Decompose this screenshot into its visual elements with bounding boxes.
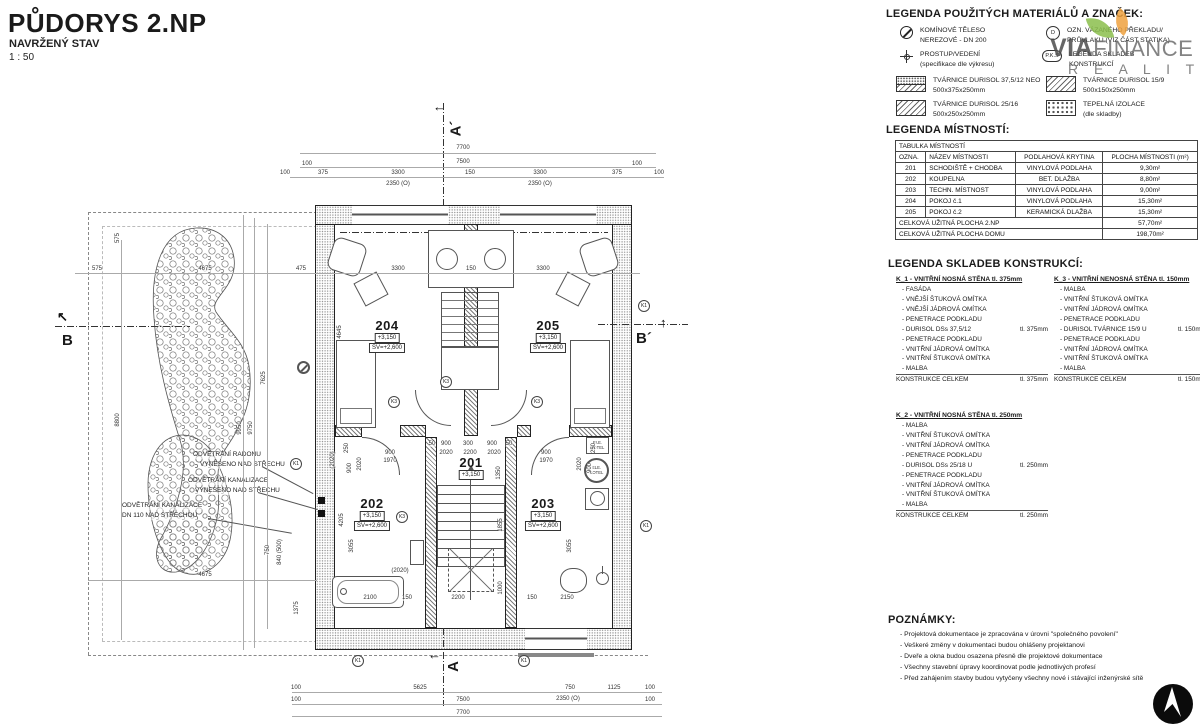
roof-outline-inner-bottom (102, 641, 317, 642)
cell-nazev: POKOJ č.2 (926, 207, 1016, 218)
dim-bot-window: 2350 (O) (556, 696, 580, 702)
bed-204-pillow (340, 408, 372, 424)
k1-marker-top-right: K1 (638, 300, 650, 312)
dim-line-v-8800 (121, 240, 122, 640)
symbol-label: OZN. VÁZANÉHO PŘEKLADU/ (1067, 27, 1163, 34)
layer-row: - VNITŘNÍ ŠTUKOVÁ OMÍTKA (1060, 295, 1200, 305)
dim-corr-300: 300 (463, 441, 473, 447)
layer-name: - PENETRACE PODKLADU (902, 315, 982, 325)
drawing-sheet: PŮDORYS 2.NP NAVRŽENÝ STAV 1 : 50 (0, 0, 1200, 725)
total-house-value: 198,70m² (1103, 229, 1198, 240)
total-2np-label: CELKOVÁ UŽITNÁ PLOCHA 2.NP (896, 218, 1103, 229)
cell-ozna: 205 (896, 207, 926, 218)
table-row: 202 KOUPELNA BET. DLAŽBA 8,80m² (896, 174, 1198, 185)
k3-marker-204: K3 (388, 396, 400, 408)
hatch-label-2: 500x250x250mm (933, 111, 985, 118)
layer-name: - MALBA (1060, 364, 1086, 374)
cell-krytina: KERAMICKÁ DLAŽBA (1016, 207, 1103, 218)
cell-nazev: SCHODIŠTĚ + CHODBA (926, 163, 1016, 174)
room-201-elev: +3,150 (459, 470, 484, 480)
layer-name: - MALBA (902, 364, 928, 374)
layer-row: - MALBA (1060, 285, 1200, 295)
dim-203-2020v: 2020 (577, 457, 583, 470)
room-203-sv: SV=+2,600 (525, 521, 561, 531)
dim-line-bottom-2 (292, 704, 662, 705)
table-row: 201 SCHODIŠTĚ + CHODBA VINYLOVÁ PODLAHA … (896, 163, 1198, 174)
watermark-brand: VIAFINANCE (1050, 34, 1193, 63)
dim-202-2020p2: (2020) (391, 568, 408, 574)
dim-203-3055: 3055 (567, 539, 573, 552)
dim-bot-7700: 7700 (456, 710, 469, 716)
table-row: 203 TECHN. MÍSTNOST VINYLOVÁ PODLAHA 9,0… (896, 185, 1198, 196)
note-item: - Projektová dokumentace je zpracována v… (890, 630, 1143, 641)
layer-name: - VNĚJŠÍ ŠTUKOVÁ OMÍTKA (902, 295, 987, 305)
k2-layers: - MALBA - VNITŘNÍ ŠTUKOVÁ OMÍTKA - VNITŘ… (896, 421, 1048, 511)
dim-left-8800: 8800 (115, 413, 121, 426)
layer-name: - PENETRACE PODKLADU (902, 471, 982, 481)
layer-name: - PENETRACE PODKLADU (1060, 315, 1140, 325)
dim-202-2020v: 2020 (357, 457, 363, 470)
dim-corr-50b: 50 (506, 441, 513, 447)
layer-row: - VNITŘNÍ JÁDROVÁ OMÍTKA (902, 441, 1048, 451)
dim-bot-100L2: 100 (291, 697, 301, 703)
layer-name: - PENETRACE PODKLADU (902, 451, 982, 461)
dim-corr-1855: 1855 (498, 518, 504, 531)
k3-marker-202: K3 (396, 511, 408, 523)
section-arrow-b-prime: ↑ (660, 316, 667, 329)
hatch-label: TVÁRNICE DURISOL 25/16 (933, 101, 1018, 108)
layer-row: - PENETRACE PODKLADU (902, 451, 1048, 461)
cell-plocha: 8,80m² (1103, 174, 1198, 185)
legend-rooms-heading: LEGENDA MÍSTNOSTÍ: (886, 124, 1010, 136)
dim-line-top-3 (290, 177, 664, 178)
layer-name: - PENETRACE PODKLADU (902, 335, 982, 345)
section-arrow-b: ↖ (57, 310, 68, 323)
dim-left-4675: 4675 (198, 266, 211, 272)
layer-row: - VNĚJŠÍ ŠTUKOVÁ OMÍTKA (902, 295, 1048, 305)
cell-nazev: KOUPELNA (926, 174, 1016, 185)
wall-203-corridor-a (517, 425, 531, 437)
dim-line-top-1 (300, 153, 656, 154)
layer-name: - VNITŘNÍ ŠTUKOVÁ OMÍTKA (902, 431, 990, 441)
hatch-durisol-25 (896, 100, 926, 116)
rooms-table-title: TABULKA MÍSTNOSTÍ (896, 141, 1198, 152)
legend-symbol-penetration: PROSTUP/VEDENÍ(specifikace dle výkresu) (900, 50, 994, 70)
room-203-elev: +3,150 (531, 511, 556, 521)
layer-name: - VNITŘNÍ JÁDROVÁ OMÍTKA (902, 345, 990, 355)
annotation-dn110-1: ODVĚTRÁNÍ KANALIZACE (122, 503, 202, 510)
col-ozna: OZNA. (896, 152, 926, 163)
layer-row: - PENETRACE PODKLADU (902, 335, 1048, 345)
dim-corr-900a: 900 (441, 441, 451, 447)
layer-row: - PENETRACE PODKLADU (902, 315, 1048, 325)
threshold-203 (518, 653, 594, 657)
dim-bot-7500: 7500 (456, 697, 469, 703)
room-label-205: 205 (536, 318, 559, 333)
dim-bot-100R: 100 (645, 685, 655, 691)
layer-name: - MALBA (1060, 285, 1086, 295)
k3-layers: - MALBA - VNITŘNÍ ŠTUKOVÁ OMÍTKA - VNITŘ… (1054, 285, 1200, 375)
k1-total-label: KONSTRUKCE CELKEM (896, 375, 968, 386)
dim-203-250: 250 (591, 443, 597, 453)
wall-exterior-left (315, 224, 335, 629)
section-line-b-prime (598, 324, 688, 325)
pipe-penetration-2 (318, 510, 325, 517)
wall-stair-right (505, 437, 517, 628)
rooms-table-body: 201 SCHODIŠTĚ + CHODBA VINYLOVÁ PODLAHA … (896, 163, 1198, 218)
hatch-izolace (1046, 100, 1076, 116)
layer-name: - VNITŘNÍ ŠTUKOVÁ OMÍTKA (902, 354, 990, 364)
wall-exterior-right (612, 224, 632, 629)
cell-plocha: 15,30m² (1103, 196, 1198, 207)
annotation-radon-1: ODVĚTRÁNÍ RADONU (193, 452, 261, 459)
k2-title: K_2 - VNITŘNÍ NOSNÁ STĚNA tl. 250mm (896, 412, 1048, 419)
cell-krytina: VINYLOVÁ PODLAHA (1016, 163, 1103, 174)
dim-corr-1000: 1000 (498, 581, 504, 594)
penetration-legend-icon (900, 50, 913, 63)
room-202-sv: SV=+2,600 (354, 521, 390, 531)
note-item: - Všechny stavební úpravy koordinovat po… (890, 663, 1143, 674)
col-krytina: PODLAHOVÁ KRYTINA (1016, 152, 1103, 163)
k3-total-label: KONSTRUKCE CELKEM (1054, 375, 1126, 386)
dim-202-900v: 900 (347, 463, 353, 473)
dim-202-250: 250 (344, 443, 350, 453)
washbasin-202 (410, 540, 424, 565)
layer-row: - PENETRACE PODKLADU (1060, 335, 1200, 345)
layer-row: - VNITŘNÍ ŠTUKOVÁ OMÍTKA (902, 354, 1048, 364)
dim-203-150: 150 (527, 595, 537, 601)
legend-hatch-izolace: TEPELNÁ IZOLACE(dle skladby) (1046, 100, 1145, 120)
dim-top-7700: 7700 (456, 145, 469, 151)
layer-row: - PENETRACE PODKLADU (1060, 315, 1200, 325)
k1-marker-bottom-right: K1 (518, 655, 530, 667)
k1-marker-right: K1 (640, 520, 652, 532)
watermark-finance: FINANCE (1093, 36, 1193, 61)
layer-thickness: tl. 375mm (1020, 325, 1048, 335)
dim-202-4205: 4205 (339, 513, 345, 526)
dim-line-v-7625 (267, 224, 268, 629)
layer-row: - VNĚJŠÍ JÁDROVÁ OMÍTKA (902, 305, 1048, 315)
layer-name: - PENETRACE PODKLADU (1060, 335, 1140, 345)
symbol-label-2: NEREZOVÉ - DN 200 (920, 37, 986, 44)
layer-row: - VNITŘNÍ JÁDROVÁ OMÍTKA (1060, 345, 1200, 355)
dim-204-3300: 3300 (391, 266, 404, 272)
dim-left-840: 840 (500) (277, 539, 283, 565)
layer-name: - DURISOL TVÁRNICE 15/9 U (1060, 325, 1147, 335)
dim-201-2200: 2200 (451, 595, 464, 601)
dim-left-575v: 575 (115, 233, 121, 243)
dim-left-750: 750 (265, 545, 271, 555)
symbol-label-2: (specifikace dle výkresu) (920, 61, 994, 68)
layer-thickness: tl. 150mm (1178, 325, 1200, 335)
table-row: 204 POKOJ č.1 VINYLOVÁ PODLAHA 15,30m² (896, 196, 1198, 207)
roof-outline-top (88, 212, 317, 213)
cell-ozna: 203 (896, 185, 926, 196)
dim-left-9750: 9750 (248, 421, 254, 434)
construction-k1: K_1 - VNITŘNÍ NOSNÁ STĚNA tl. 375mm - FA… (896, 276, 1048, 386)
section-label-b-prime: B´ (636, 330, 652, 347)
room-204-sv: SV=+2,600 (369, 343, 405, 353)
watermark-via: VIA (1050, 34, 1093, 62)
dim-bot-100R2: 100 (645, 697, 655, 703)
layer-row: - DURISOL DSs 25/18 Utl. 250mm (902, 461, 1048, 471)
dim-center-150: 150 (466, 266, 476, 272)
bathtub-drain (340, 588, 347, 595)
k1-total-value: tl. 375mm (1020, 375, 1048, 386)
dim-left-9950: 9950 (237, 421, 243, 434)
layer-name: - DURISOL DSs 37,5/12 (902, 325, 971, 335)
electric-boiler-box: ELE. KOTEL (586, 437, 609, 454)
dim-line-left-bottom (88, 580, 317, 581)
k3-marker-205: K3 (531, 396, 543, 408)
note-item: - Dveře a okna budou osazena přesně dle … (890, 652, 1143, 663)
layer-row: - VNITŘNÍ JÁDROVÁ OMÍTKA (1060, 305, 1200, 315)
cell-krytina: BET. DLAŽBA (1016, 174, 1103, 185)
dim-205-3300: 3300 (536, 266, 549, 272)
note-item: - Veškeré změny v dokumentaci budou ohlá… (890, 641, 1143, 652)
note-item: - Před zahájením stavby budou vytyčeny v… (890, 674, 1143, 685)
room-205-elev: +3,150 (536, 333, 561, 343)
dim-204-4645: 4645 (337, 325, 343, 338)
layer-name: - MALBA (902, 421, 928, 431)
layer-row: - DURISOL TVÁRNICE 15/9 Utl. 150mm (1060, 325, 1200, 335)
k3-total-value: tl. 150mm (1178, 375, 1200, 386)
desk-chair-205 (484, 248, 506, 270)
construction-k2: K_2 - VNITŘNÍ NOSNÁ STĚNA tl. 250mm - MA… (896, 412, 1048, 522)
cell-krytina: VINYLOVÁ PODLAHA (1016, 196, 1103, 207)
dim-top-window-1: 2350 (O) (386, 181, 410, 187)
legend-hatch-25: TVÁRNICE DURISOL 25/16500x250x250mm (896, 100, 1018, 120)
layer-row: - FASÁDA (902, 285, 1048, 295)
dim-left-7625: 7625 (261, 371, 267, 384)
door-exterior-203 (525, 628, 587, 650)
dim-top-375b: 375 (612, 170, 622, 176)
dim-top-150: 150 (465, 170, 475, 176)
dim-door-202-900: 900 (385, 450, 395, 456)
dim-left-475: 475 (296, 266, 306, 272)
legend-symbol-chimney: KOMÍNOVÉ TĚLESONEREZOVÉ - DN 200 (900, 26, 986, 46)
layer-row: - VNITŘNÍ ŠTUKOVÁ OMÍTKA (902, 431, 1048, 441)
pipe-penetration-1 (318, 497, 325, 504)
dim-top-375a: 375 (318, 170, 328, 176)
legend-hatch-15: TVÁRNICE DURISOL 15/9500x150x250mm (1046, 76, 1164, 96)
section-line-a (443, 628, 444, 706)
wall-202-corridor-b (400, 425, 426, 437)
section-arrow-a-prime: ← (433, 100, 446, 113)
dim-line-v-9950 (243, 215, 244, 650)
chimney-icon (297, 361, 310, 374)
hatch-label: TEPELNÁ IZOLACE (1083, 101, 1145, 108)
bed-205-pillow (574, 408, 606, 424)
cell-plocha: 9,00m² (1103, 185, 1198, 196)
dim-top-3300b: 3300 (533, 170, 546, 176)
cell-plocha: 9,30m² (1103, 163, 1198, 174)
hatch-durisol-neo (896, 76, 926, 92)
cell-ozna: 204 (896, 196, 926, 207)
annotation-kanalizace-1: ODVĚTRÁNÍ KANALIZACE (188, 478, 268, 485)
k1-marker-left: K1 (290, 458, 302, 470)
dim-door-203-900: 900 (541, 450, 551, 456)
layer-name: - VNITŘNÍ ŠTUKOVÁ OMÍTKA (902, 490, 990, 500)
window-205 (500, 205, 596, 225)
symbol-label: KOMÍNOVÉ TĚLESO (920, 27, 985, 34)
k1-marker-bottom-left: K1 (352, 655, 364, 667)
room-205-sv: SV=+2,600 (530, 343, 566, 353)
dim-top-100L: 100 (280, 170, 290, 176)
roof-outline-inner-top (102, 226, 317, 227)
k2-total-label: KONSTRUKCE CELKEM (896, 511, 968, 522)
dim-line-mid (75, 273, 640, 274)
dim-top-100a: 100 (302, 161, 312, 167)
layer-row: - VNITŘNÍ JÁDROVÁ OMÍTKA (902, 345, 1048, 355)
layer-name: - VNITŘNÍ ŠTUKOVÁ OMÍTKA (1060, 295, 1148, 305)
layer-row: - MALBA (902, 421, 1048, 431)
layer-row: - PENETRACE PODKLADU (902, 471, 1048, 481)
layer-name: - VNITŘNÍ JÁDROVÁ OMÍTKA (1060, 345, 1148, 355)
k3-title: K_3 - VNITŘNÍ NENOSNÁ STĚNA tl. 150mm (1054, 276, 1200, 283)
dim-bot-1125: 1125 (608, 685, 621, 691)
dim-corr-2020b: 2020 (487, 450, 500, 456)
legend-constructions-heading: LEGENDA SKLADEB KONSTRUKCÍ: (888, 258, 1083, 270)
notes-heading: POZNÁMKY: (888, 614, 956, 626)
table-row: 205 POKOJ č.2 KERAMICKÁ DLAŽBA 15,30m² (896, 207, 1198, 218)
window-204 (352, 205, 448, 225)
roof-outline-left (88, 212, 89, 655)
dim-left-1375: 1375 (294, 601, 300, 614)
dim-line-top-2 (300, 167, 656, 168)
dim-202-2100: 2100 (363, 595, 376, 601)
legend-materials-heading: LEGENDA POUŽITÝCH MATERIÁLŮ A ZNAČEK: (886, 8, 1143, 20)
layer-name: - MALBA (902, 500, 928, 510)
dim-top-100R: 100 (654, 170, 664, 176)
cell-ozna: 201 (896, 163, 926, 174)
dim-left-4675b: 4675 (198, 572, 211, 578)
dim-left-575h: 575 (92, 266, 102, 272)
dim-corr-900b: 900 (487, 441, 497, 447)
dim-corr-1350: 1350 (496, 466, 502, 479)
layer-row: - MALBA (902, 500, 1048, 510)
k1-title: K_1 - VNITŘNÍ NOSNÁ STĚNA tl. 375mm (896, 276, 1048, 283)
dim-top-7500: 7500 (456, 159, 469, 165)
dim-top-window-2: 2350 (O) (528, 181, 552, 187)
washing-machine-drum (590, 491, 605, 506)
dim-203-900v: 900 (587, 463, 593, 473)
hatch-label-2: (dle skladby) (1083, 111, 1122, 118)
layer-thickness: tl. 250mm (1020, 461, 1048, 471)
stair-opening (448, 548, 494, 592)
sink-tap (602, 566, 603, 574)
room-204-elev: +3,150 (375, 333, 400, 343)
room-label-202: 202 (360, 496, 383, 511)
hatch-label-2: 500x150x250mm (1083, 87, 1135, 94)
layer-name: - VNITŘNÍ JÁDROVÁ OMÍTKA (1060, 305, 1148, 315)
corner-logo-icon (1152, 683, 1194, 725)
dim-door-202-1970: 1970 (383, 458, 396, 464)
layer-name: - FASÁDA (902, 285, 931, 295)
wall-stair-left (425, 437, 437, 628)
section-label-a-prime: A´ (447, 121, 464, 137)
chimney-legend-icon (900, 26, 913, 39)
dim-corr-2200: 2200 (463, 450, 476, 456)
room-label-203: 203 (531, 496, 554, 511)
annotation-dn110-2: DN 110 NAD STŘECHOU (122, 513, 197, 520)
wardrobe-shelves (441, 292, 499, 347)
k3-marker-center: K3 (440, 376, 452, 388)
layer-name: - VNITŘNÍ ŠTUKOVÁ OMÍTKA (1060, 354, 1148, 364)
dim-203-2150: 2150 (560, 595, 573, 601)
dim-door-203-1970: 1970 (539, 458, 552, 464)
layer-row: - VNITŘNÍ ŠTUKOVÁ OMÍTKA (902, 490, 1048, 500)
layer-row: - DURISOL DSs 37,5/12tl. 375mm (902, 325, 1048, 335)
cell-nazev: POKOJ č.1 (926, 196, 1016, 207)
dim-top-3300a: 3300 (391, 170, 404, 176)
section-line-b (55, 326, 190, 327)
section-arrow-a: ← (428, 648, 441, 661)
room-label-201: 201 (459, 455, 482, 470)
dim-corr-2020a: 2020 (439, 450, 452, 456)
layer-name: - VNĚJŠÍ JÁDROVÁ OMÍTKA (902, 305, 987, 315)
col-plocha: PLOCHA MÍSTNOSTI (m²) (1103, 152, 1198, 163)
total-house-label: CELKOVÁ UŽITNÁ PLOCHA DOMU (896, 229, 1103, 240)
hatch-durisol-15 (1046, 76, 1076, 92)
dim-top-100b: 100 (632, 161, 642, 167)
dim-202-3055: 3055 (349, 539, 355, 552)
hatch-label: TVÁRNICE DURISOL 37,5/12 NEO (933, 77, 1040, 84)
construction-k3: K_3 - VNITŘNÍ NENOSNÁ STĚNA tl. 150mm - … (1054, 276, 1200, 386)
layer-row: - MALBA (902, 364, 1048, 374)
dim-bot-750: 750 (565, 685, 575, 691)
symbol-label: PROSTUP/VEDENÍ (920, 51, 980, 58)
cell-ozna: 202 (896, 174, 926, 185)
room-label-204: 204 (375, 318, 398, 333)
chimney-slash (299, 362, 310, 373)
legend-hatch-neo: TVÁRNICE DURISOL 37,5/12 NEO500x375x250m… (896, 76, 1040, 96)
toilet (560, 568, 587, 593)
hatch-label-2: 500x375x250mm (933, 87, 985, 94)
col-nazev: NÁZEV MÍSTNOSTI (926, 152, 1016, 163)
dim-bot-100L: 100 (291, 685, 301, 691)
section-label-a: A (445, 661, 462, 672)
room-202-elev: +3,150 (360, 511, 385, 521)
layer-row: - MALBA (1060, 364, 1200, 374)
cell-krytina: VINYLOVÁ PODLAHA (1016, 185, 1103, 196)
layer-name: - VNITŘNÍ JÁDROVÁ OMÍTKA (902, 481, 990, 491)
dim-corr-50a: 50 (429, 441, 436, 447)
layer-name: - DURISOL DSs 25/18 U (902, 461, 972, 471)
cell-plocha: 15,30m² (1103, 207, 1198, 218)
layer-name: - VNITŘNÍ JÁDROVÁ OMÍTKA (902, 441, 990, 451)
dim-bot-5625: 5625 (413, 685, 426, 691)
hatch-label: TVÁRNICE DURISOL 15/9 (1083, 77, 1164, 84)
k2-total-value: tl. 250mm (1020, 511, 1048, 522)
k1-layers: - FASÁDA - VNĚJŠÍ ŠTUKOVÁ OMÍTKA - VNĚJŠ… (896, 285, 1048, 375)
dim-line-bottom-1 (292, 692, 662, 693)
dim-202-2020p: (2020) (330, 451, 336, 468)
dim-202-150: 150 (402, 595, 412, 601)
section-line-a-prime (443, 103, 444, 205)
desk-chair-204 (436, 248, 458, 270)
dim-line-bottom-3 (292, 716, 662, 717)
total-2np-value: 57,70m² (1103, 218, 1198, 229)
rooms-table: TABULKA MÍSTNOSTÍ OZNA. NÁZEV MÍSTNOSTI … (895, 140, 1198, 240)
watermark-reality: R E A L I T Y (1068, 61, 1200, 77)
layer-row: - VNITŘNÍ JÁDROVÁ OMÍTKA (902, 481, 1048, 491)
section-label-b: B (62, 332, 73, 349)
roof-outline-inner-left (102, 226, 103, 641)
dim-line-v-9750 (254, 218, 255, 648)
cell-nazev: TECHN. MÍSTNOST (926, 185, 1016, 196)
layer-row: - VNITŘNÍ ŠTUKOVÁ OMÍTKA (1060, 354, 1200, 364)
